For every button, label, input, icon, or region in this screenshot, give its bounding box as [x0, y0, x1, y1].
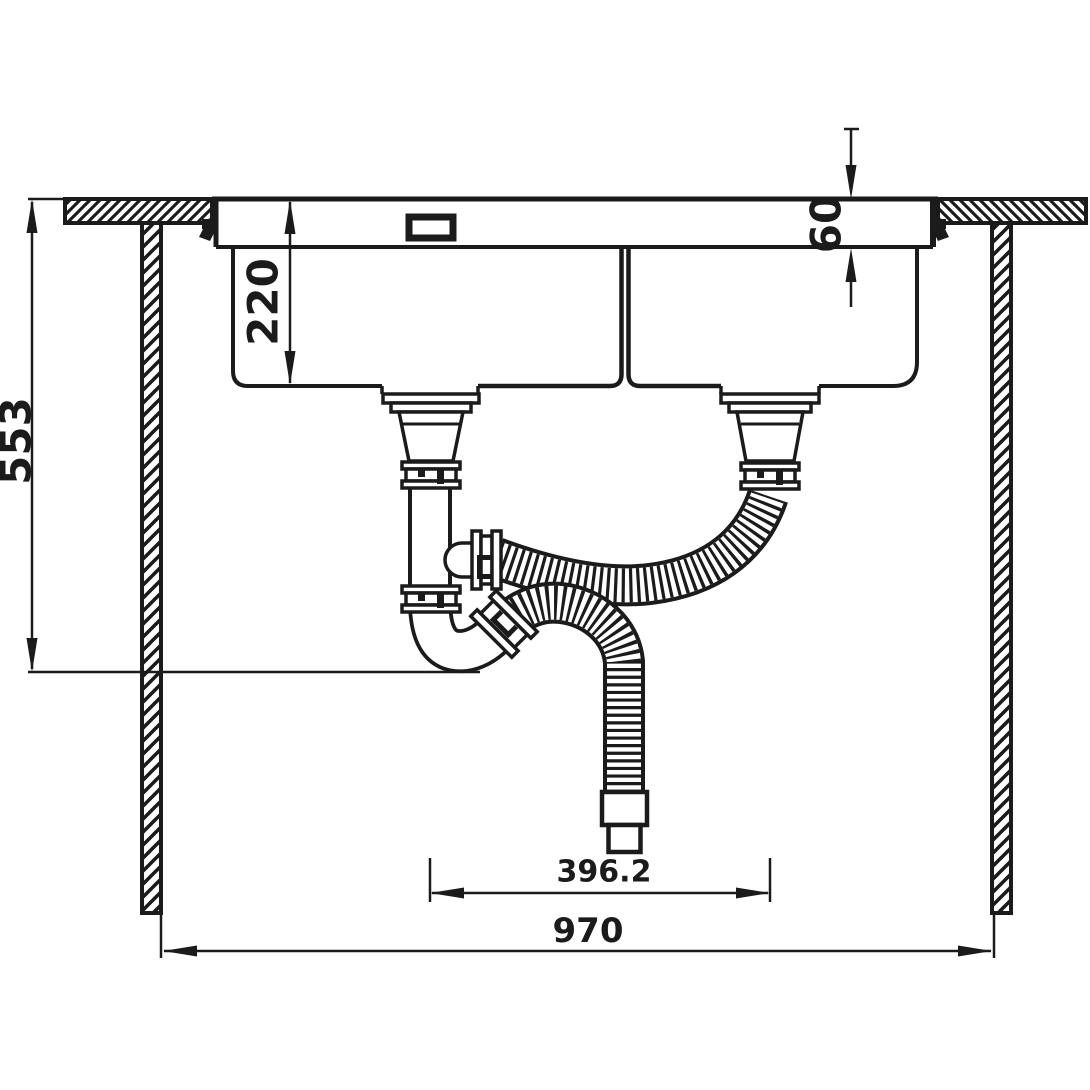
overflow-fitting — [409, 217, 453, 238]
trap-side-inlet — [445, 543, 474, 577]
dim-label-553: 553 — [0, 397, 41, 485]
flex-hose-right-bowl — [496, 496, 768, 585]
countertop-left — [65, 199, 212, 223]
dim-label-970: 970 — [553, 911, 624, 951]
hose-end-coupling — [602, 792, 647, 852]
coupling-nut-upper-left — [402, 462, 460, 488]
drain-funnel-right — [721, 394, 819, 461]
drain-funnel-left — [383, 394, 479, 461]
dim-label-396: 396.2 — [557, 855, 652, 890]
dim-label-60: 60 — [802, 195, 851, 253]
dim-label-220: 220 — [239, 258, 288, 346]
cabinet-wall-right — [992, 223, 1011, 913]
sink-installation-drawing: 553 220 60 396.2 970 — [0, 0, 1090, 1090]
inlet-collar-nut — [472, 531, 501, 589]
countertop-right — [938, 199, 1086, 223]
coupling-nut-lower-left — [402, 586, 460, 612]
coupling-nut-right — [741, 463, 799, 489]
cabinet-wall-left — [142, 223, 161, 913]
drawing-canvas: 553 220 60 396.2 970 — [0, 0, 1090, 1090]
